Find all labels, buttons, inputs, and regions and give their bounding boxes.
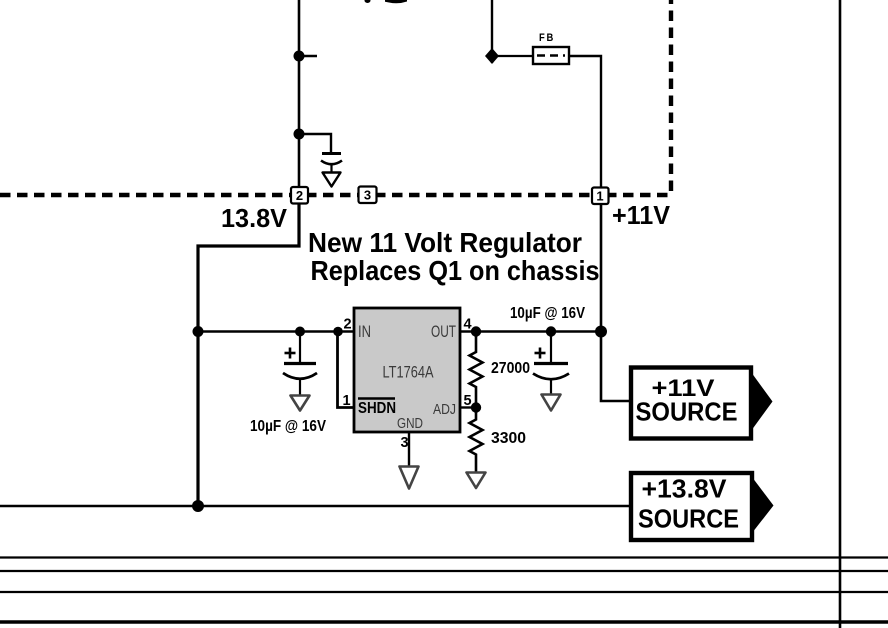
- svg-text:+13.8V: +13.8V: [642, 474, 728, 504]
- svg-text:1: 1: [342, 393, 350, 409]
- svg-text:3: 3: [400, 435, 408, 451]
- svg-text:10µF @ 16V: 10µF @ 16V: [510, 305, 585, 322]
- svg-text:4: 4: [463, 317, 471, 333]
- svg-text:ADJ: ADJ: [433, 401, 456, 418]
- svg-text:LT1764A: LT1764A: [383, 364, 434, 382]
- svg-text:OUT: OUT: [431, 322, 456, 341]
- svg-text:SHDN: SHDN: [358, 400, 396, 417]
- svg-text:IN: IN: [358, 322, 371, 341]
- svg-text:FB: FB: [539, 32, 555, 44]
- svg-text:GND: GND: [397, 415, 423, 432]
- svg-text:13.8V: 13.8V: [221, 203, 288, 233]
- svg-text:3300: 3300: [491, 430, 526, 447]
- svg-text:2: 2: [296, 188, 303, 203]
- svg-text:1: 1: [596, 189, 603, 204]
- svg-text:Replaces Q1 on chassis: Replaces Q1 on chassis: [311, 255, 600, 286]
- svg-text:2: 2: [343, 317, 351, 333]
- svg-text:SOURCE: SOURCE: [636, 397, 738, 427]
- svg-text:3: 3: [364, 188, 371, 203]
- svg-text:SOURCE: SOURCE: [638, 504, 739, 534]
- svg-text:10µF @ 16V: 10µF @ 16V: [250, 418, 326, 435]
- svg-text:New 11 Volt Regulator: New 11 Volt Regulator: [308, 227, 582, 258]
- svg-text:27000: 27000: [491, 360, 530, 377]
- svg-text:+11V: +11V: [612, 200, 671, 230]
